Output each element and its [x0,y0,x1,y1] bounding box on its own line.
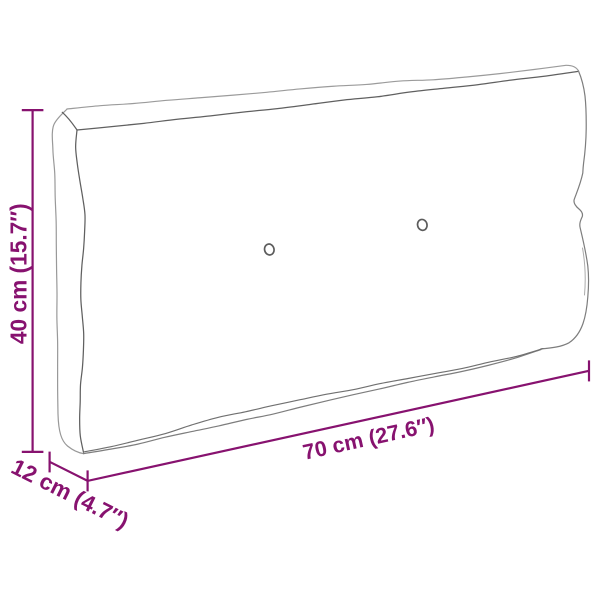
svg-text:40 cm (15.7″): 40 cm (15.7″) [5,203,31,344]
